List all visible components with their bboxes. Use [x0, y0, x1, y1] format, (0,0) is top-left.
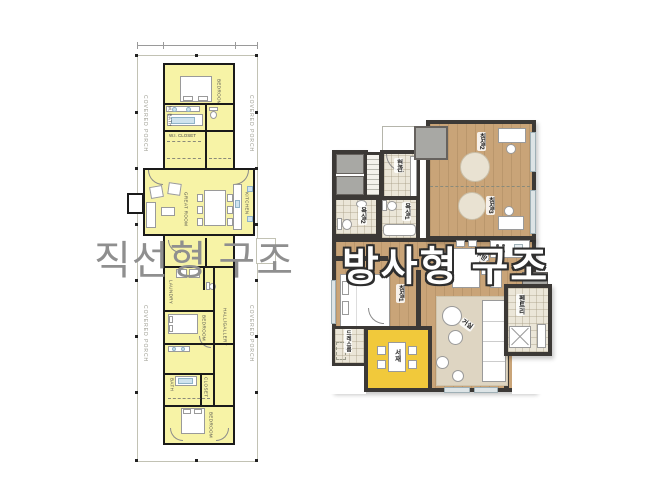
room-label: 욕실1 — [402, 202, 411, 221]
pillow — [342, 301, 349, 315]
dimension-tick — [257, 42, 258, 49]
porch-post — [255, 54, 258, 57]
room-label: KITCHEN — [244, 192, 249, 215]
room-label: W.I. CLOSET — [169, 134, 196, 139]
chair — [197, 218, 203, 226]
porch-label: COVERED PORCH — [142, 95, 148, 152]
porch-post — [255, 391, 258, 394]
armchair — [167, 182, 182, 196]
porch-post — [195, 459, 198, 462]
desk-chair — [504, 206, 514, 216]
sofa — [482, 300, 506, 382]
wall — [165, 310, 213, 312]
window — [444, 387, 470, 393]
porch-label: COVERED PORCH — [248, 95, 254, 152]
dimension-tick — [235, 42, 236, 49]
porch-post — [135, 391, 138, 394]
outline-cover — [512, 356, 554, 394]
round-rug — [458, 192, 486, 220]
toilet-bowl — [342, 219, 352, 230]
coffee-table — [161, 207, 175, 216]
round-table — [448, 330, 463, 345]
sink — [172, 107, 177, 112]
porch-post — [135, 54, 138, 57]
wall — [165, 405, 233, 407]
sofa-cushion-line — [483, 321, 505, 322]
room-label: 드레스룸 — [344, 329, 352, 353]
outline-cover — [328, 366, 366, 394]
room-label: 침실2 — [477, 132, 486, 151]
porch-post — [135, 335, 138, 338]
dimension-tick — [137, 42, 138, 49]
pillow — [169, 325, 173, 332]
sofa — [146, 202, 156, 228]
left-plan-title: 직선형 구조 — [94, 228, 294, 286]
room-label: 현관 — [394, 158, 403, 173]
room-label: BATH — [169, 378, 174, 391]
pillow — [198, 96, 208, 101]
window — [331, 280, 336, 324]
desk — [498, 216, 524, 230]
armchair — [149, 185, 164, 199]
elevator — [336, 176, 364, 195]
porch-post — [255, 459, 258, 462]
right-plan-title: 방사형 구조 — [342, 234, 549, 292]
wall — [205, 132, 207, 168]
dimension-tick — [163, 42, 164, 49]
wall — [165, 343, 233, 345]
room-label: 서재 — [392, 348, 401, 363]
dining-table — [204, 190, 226, 226]
bathtub-water — [178, 378, 193, 384]
sink — [172, 347, 176, 351]
porch-post — [135, 223, 138, 226]
sofa-cushion-line — [483, 361, 505, 362]
sofa-cushion-line — [483, 341, 505, 342]
floor-plan-comparison: COVERED PORCH COVERED PORCH COVERED PORC… — [0, 0, 658, 496]
porch-post — [135, 167, 138, 170]
plant — [436, 356, 449, 369]
room-label: 침실3 — [486, 196, 495, 215]
round-rug — [460, 152, 490, 182]
entry-alcove — [382, 126, 416, 152]
wall — [165, 373, 213, 375]
porch-label: COVERED PORCH — [248, 305, 254, 362]
desk — [498, 128, 526, 143]
wall — [200, 375, 202, 405]
chair — [377, 346, 386, 355]
chair — [197, 194, 203, 202]
elevator — [336, 154, 364, 174]
room-label: 펜트리 — [516, 294, 525, 316]
sink — [186, 107, 191, 112]
room-divider-dashed — [430, 186, 530, 187]
window — [530, 190, 536, 234]
window — [474, 387, 498, 393]
chair — [197, 206, 203, 214]
wall — [205, 103, 207, 132]
washer-icon — [509, 326, 531, 348]
chair — [377, 360, 386, 369]
porch-post — [255, 223, 258, 226]
room-label: 욕실2 — [358, 206, 367, 225]
wall — [165, 130, 233, 132]
window — [530, 132, 536, 172]
pillow — [194, 409, 202, 414]
room-label: BEDROOM — [216, 79, 221, 105]
closet-rod — [167, 158, 201, 159]
stool — [452, 370, 464, 382]
duct-shaft — [414, 126, 448, 160]
wall — [213, 268, 215, 405]
pillow — [183, 409, 191, 414]
fireplace — [127, 193, 144, 214]
pillow — [169, 316, 173, 323]
porch-label: COVERED PORCH — [142, 305, 148, 362]
bathtub-water — [171, 117, 195, 124]
closet-rod — [168, 398, 210, 399]
porch-post — [135, 111, 138, 114]
porch-post — [255, 111, 258, 114]
closet-rod — [167, 141, 201, 142]
chair — [408, 360, 417, 369]
closet-rod — [209, 158, 231, 159]
appliance — [247, 216, 253, 222]
room-label: HALL/GALLERY — [222, 308, 227, 346]
room-label: CLOSET — [203, 377, 208, 397]
utility-sink — [537, 324, 546, 348]
wall — [165, 103, 233, 105]
stairwell — [364, 152, 382, 198]
porch-post — [195, 54, 198, 57]
room-label: BEDROOM — [208, 412, 213, 438]
toilet-bowl — [387, 201, 397, 211]
room-label: GREAT ROOM — [183, 192, 188, 226]
chair — [408, 346, 417, 355]
dimension-line — [137, 45, 258, 46]
kitchen-sink — [235, 200, 240, 208]
desk-chair — [506, 144, 516, 154]
toilet-bowl — [210, 111, 217, 119]
porch-post — [135, 459, 138, 462]
porch-post — [255, 167, 258, 170]
sink — [181, 347, 185, 351]
pillow — [183, 96, 193, 101]
room-label: M. BATH — [167, 106, 172, 127]
porch-post — [255, 335, 258, 338]
